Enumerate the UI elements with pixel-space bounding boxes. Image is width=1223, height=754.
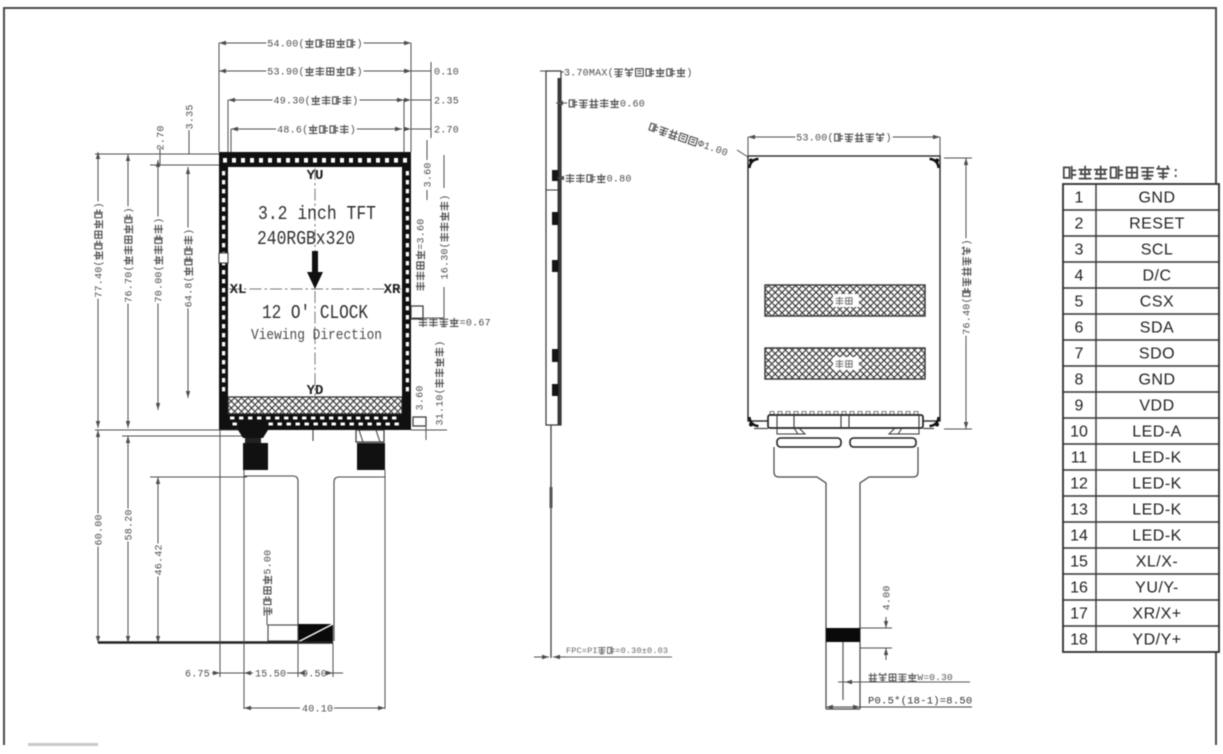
svg-text:): ) <box>93 202 105 208</box>
svg-text:): ) <box>123 207 135 213</box>
svg-text:53.00(: 53.00( <box>796 132 833 144</box>
svg-text:48.6(: 48.6( <box>277 124 308 136</box>
svg-text:12: 12 <box>1070 476 1088 493</box>
svg-text:5.00: 5.00 <box>263 550 274 575</box>
svg-text:YD: YD <box>307 383 324 399</box>
svg-text:D/C: D/C <box>1142 268 1171 285</box>
svg-text:=0.30±0.03: =0.30±0.03 <box>615 646 668 656</box>
svg-text:=0.67: =0.67 <box>460 318 491 329</box>
svg-text:6: 6 <box>1075 320 1084 337</box>
svg-text:15: 15 <box>1070 554 1088 571</box>
svg-text:31.10(: 31.10( <box>434 388 446 425</box>
svg-text:64.8(: 64.8( <box>183 276 195 307</box>
svg-text:53.90(: 53.90( <box>267 66 304 78</box>
svg-text:SDA: SDA <box>1140 320 1174 337</box>
svg-text:LED-K: LED-K <box>1132 450 1182 467</box>
svg-text:16.30(: 16.30( <box>439 242 451 279</box>
svg-text:): ) <box>357 38 363 50</box>
svg-text:XR: XR <box>384 282 401 298</box>
svg-text:54.00(: 54.00( <box>267 38 304 50</box>
svg-text:LED-K: LED-K <box>1132 528 1182 545</box>
svg-text:49.30(: 49.30( <box>274 95 311 107</box>
svg-text:2: 2 <box>1075 216 1084 233</box>
svg-text:=3.60: =3.60 <box>416 219 427 250</box>
svg-text:3.35: 3.35 <box>185 105 196 130</box>
svg-text:13: 13 <box>1070 502 1088 519</box>
svg-text:16: 16 <box>1070 580 1088 597</box>
svg-text:): ) <box>434 341 446 347</box>
svg-text:VDD: VDD <box>1139 398 1174 415</box>
svg-text:): ) <box>352 95 358 107</box>
svg-text:15.50: 15.50 <box>255 669 286 680</box>
svg-text:12 O' CLOCK: 12 O' CLOCK <box>262 302 369 324</box>
svg-text:46.42: 46.42 <box>154 545 165 576</box>
svg-text:0.60: 0.60 <box>620 99 645 110</box>
svg-text:17: 17 <box>1070 606 1088 623</box>
svg-text:4.00: 4.00 <box>882 586 893 611</box>
svg-text:7: 7 <box>1075 346 1084 363</box>
svg-text:58.20: 58.20 <box>124 510 135 541</box>
svg-text:11: 11 <box>1071 450 1088 467</box>
svg-text:RESET: RESET <box>1129 216 1185 233</box>
svg-text:): ) <box>961 239 973 245</box>
svg-text:0.80: 0.80 <box>607 174 632 185</box>
svg-text:YU/Y-: YU/Y- <box>1135 580 1179 597</box>
svg-text:): ) <box>886 132 892 144</box>
svg-text:70.00(: 70.00( <box>153 265 165 302</box>
svg-text:GND: GND <box>1138 372 1175 389</box>
svg-text:): ) <box>153 218 165 224</box>
svg-text:2.70: 2.70 <box>156 126 167 151</box>
svg-text:9: 9 <box>1075 398 1084 415</box>
svg-text:GND: GND <box>1138 190 1175 207</box>
svg-text:9.50: 9.50 <box>302 669 327 680</box>
svg-text:Viewing Direction: Viewing Direction <box>251 328 382 344</box>
svg-text:3.70MAX(: 3.70MAX( <box>564 67 614 79</box>
svg-text:3: 3 <box>1075 242 1084 259</box>
svg-text:77.40(: 77.40( <box>93 261 105 298</box>
svg-text:P0.5*(18-1)=8.50: P0.5*(18-1)=8.50 <box>868 696 972 708</box>
svg-text:): ) <box>183 229 195 235</box>
svg-text:60.00: 60.00 <box>94 515 105 546</box>
svg-text:2.35: 2.35 <box>434 96 459 107</box>
svg-text:3.60: 3.60 <box>415 386 426 411</box>
svg-text:): ) <box>439 195 451 201</box>
svg-text:LED-K: LED-K <box>1132 502 1182 519</box>
svg-text:1: 1 <box>1075 190 1084 207</box>
svg-text:SCL: SCL <box>1141 242 1174 259</box>
svg-text:40.10: 40.10 <box>302 704 333 715</box>
svg-text:FPC=PI: FPC=PI <box>566 646 598 656</box>
svg-text:14: 14 <box>1070 528 1088 545</box>
svg-text:8: 8 <box>1075 372 1084 389</box>
svg-text:): ) <box>686 67 692 79</box>
svg-text:3.60: 3.60 <box>423 163 434 188</box>
svg-text:3.2 inch TFT: 3.2 inch TFT <box>258 203 376 225</box>
svg-text:2.70: 2.70 <box>434 125 459 136</box>
svg-text:76.40(: 76.40( <box>961 298 973 335</box>
svg-text:LED-A: LED-A <box>1132 424 1182 441</box>
svg-text:): ) <box>350 124 356 136</box>
svg-text:YU: YU <box>307 168 324 184</box>
svg-text:76.70(: 76.70( <box>123 266 135 303</box>
svg-text:10: 10 <box>1070 424 1088 441</box>
svg-text:): ) <box>357 66 363 78</box>
svg-text::: : <box>1171 165 1180 182</box>
svg-text:XL: XL <box>230 282 247 298</box>
svg-text:XR/X+: XR/X+ <box>1132 606 1181 623</box>
svg-text:LED-K: LED-K <box>1132 476 1182 493</box>
svg-text:0.10: 0.10 <box>434 67 459 78</box>
svg-text:CSX: CSX <box>1140 294 1174 311</box>
svg-text:YD/Y+: YD/Y+ <box>1132 632 1181 649</box>
svg-text:4: 4 <box>1075 268 1084 285</box>
svg-text:SDO: SDO <box>1139 346 1175 363</box>
svg-text:5: 5 <box>1075 294 1084 311</box>
svg-text:240RGBx320: 240RGBx320 <box>257 228 355 250</box>
svg-text:18: 18 <box>1070 632 1088 649</box>
svg-text:6.75: 6.75 <box>185 669 210 680</box>
svg-text:XL/X-: XL/X- <box>1136 554 1179 571</box>
